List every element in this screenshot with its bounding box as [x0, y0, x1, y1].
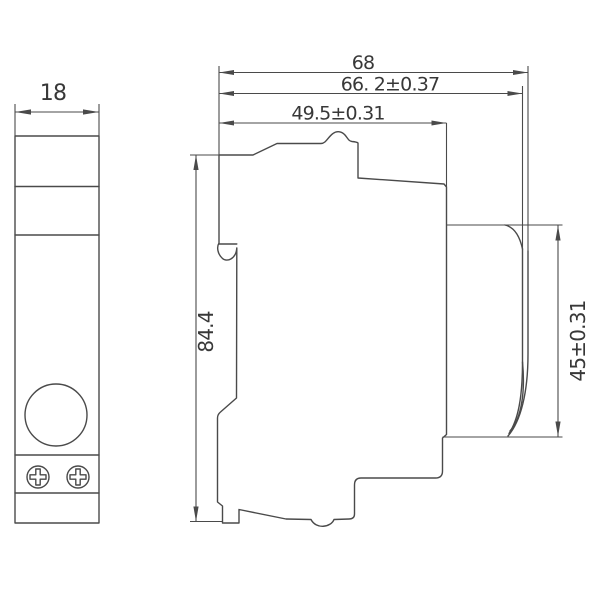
arrowhead — [432, 121, 447, 126]
screw-cross-right — [70, 469, 86, 485]
phillips-screw-icon — [67, 466, 89, 488]
front-view — [15, 136, 99, 523]
arrowhead — [219, 91, 234, 96]
bezel-fillet-curve — [505, 225, 523, 249]
side-view — [218, 132, 529, 527]
dim-label-depth-tolerance: 66. 2±0.37 — [341, 74, 440, 96]
side-body-outline — [218, 132, 447, 527]
arrowhead — [555, 422, 560, 437]
arrowhead — [513, 70, 528, 75]
technical-drawing-canvas: 18 68 66. 2±0.37 49.5±0.31 84.4 — [0, 0, 600, 600]
arrowhead — [193, 507, 198, 522]
dim-label-upper-depth: 49.5±0.31 — [291, 103, 384, 125]
arrowhead — [219, 70, 234, 75]
dimensions: 18 68 66. 2±0.37 49.5±0.31 84.4 — [15, 52, 590, 522]
indicator-lens-circle — [25, 384, 87, 446]
front-body-outline — [15, 136, 99, 523]
arrowhead — [83, 109, 99, 114]
screw-cross-left — [30, 469, 46, 485]
phillips-screw-icon — [27, 466, 49, 488]
dimension-drawing: 18 68 66. 2±0.37 49.5±0.31 84.4 — [0, 0, 600, 600]
dim-label-height: 84.4 — [194, 311, 218, 352]
arrowhead — [15, 109, 31, 114]
bezel-lens-arc — [510, 362, 523, 431]
arrowhead — [219, 121, 234, 126]
dim-label-front-width: 18 — [40, 81, 66, 106]
arrowhead — [555, 226, 560, 241]
dim-label-bezel-height: 45±0.31 — [566, 300, 590, 381]
arrowhead — [193, 155, 198, 170]
arrowhead — [508, 91, 523, 96]
dim-label-overall-depth: 68 — [352, 52, 375, 74]
